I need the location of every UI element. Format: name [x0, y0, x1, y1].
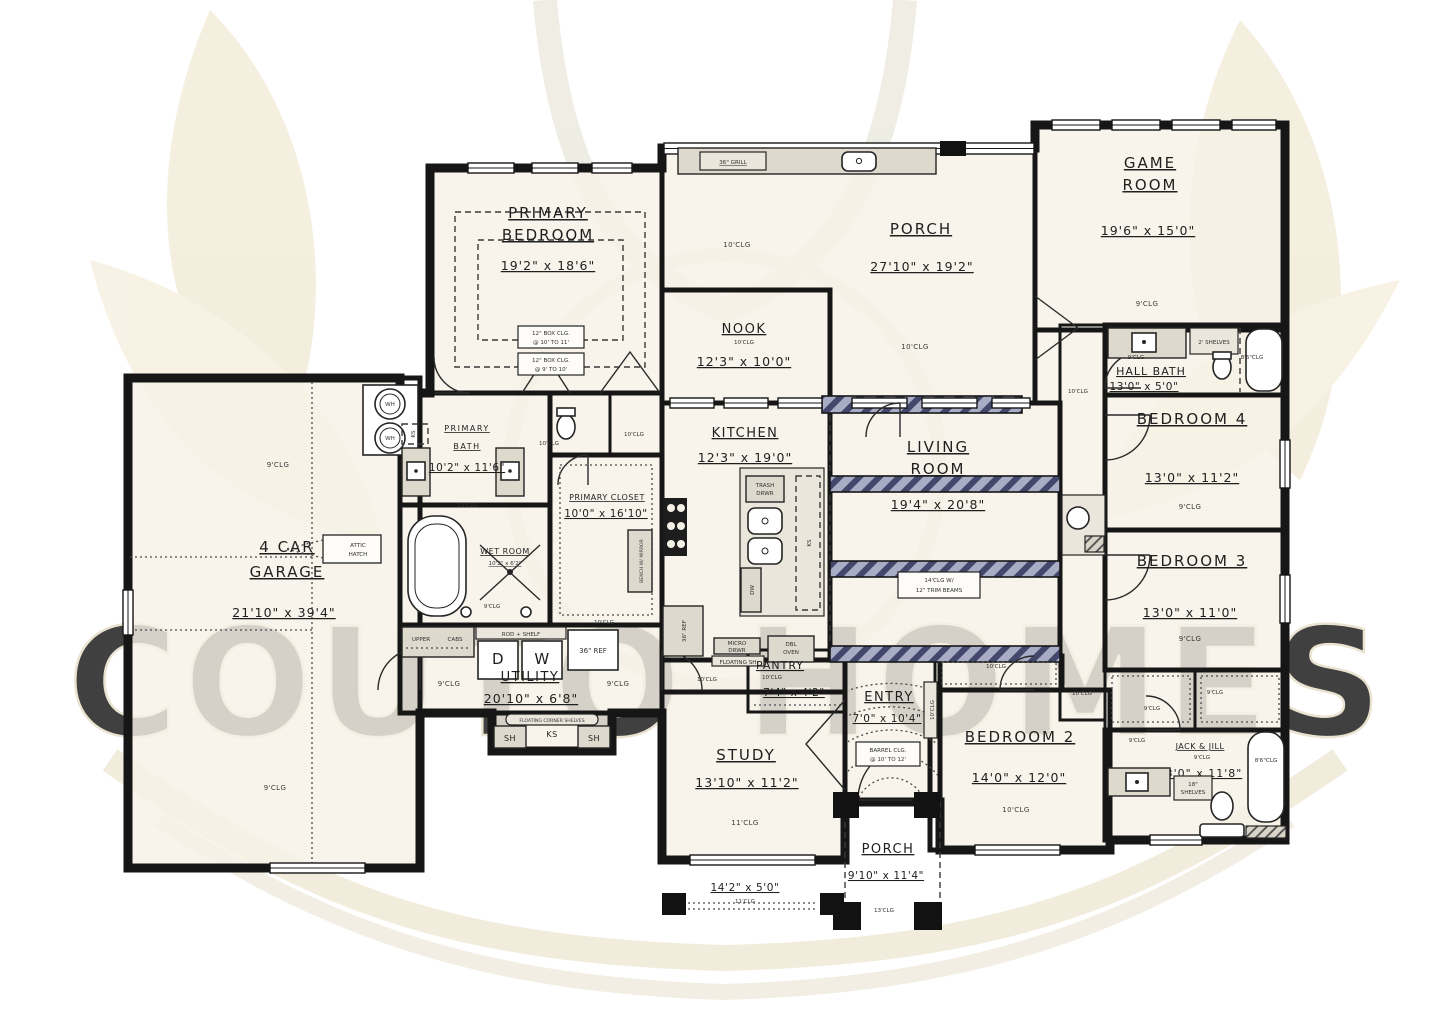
living-title-1: LIVING — [907, 438, 969, 456]
bedroom3-clg: 9'CLG — [1179, 635, 1202, 643]
wh-label-1: WH — [385, 402, 395, 408]
nook-clg: 10'CLG — [734, 340, 754, 346]
attic-hatch-label-1: ATTIC — [350, 543, 366, 549]
primary-toilet — [557, 415, 575, 439]
mud-sh-right-label: SH — [588, 734, 600, 743]
garage-title-1: 4 CAR — [259, 538, 314, 556]
beam-4 — [830, 646, 1060, 662]
game-dims: 19'6" x 15'0" — [1101, 223, 1195, 238]
entry-dims: 7'0" x 10'4" — [853, 713, 922, 725]
game-title-1: GAME — [1124, 154, 1176, 172]
wet-room-title: WET ROOM — [480, 547, 529, 556]
pantry-clg: 10'CLG — [762, 675, 782, 681]
island-sink-1 — [748, 508, 782, 534]
box-clg-2a: 12" BOX CLG. — [532, 358, 570, 364]
attic-hatch-label-2: HATCH — [349, 552, 368, 558]
trash-label-2: DRWR — [756, 491, 773, 497]
study-dims: 13'10" x 11'2" — [695, 775, 798, 790]
living-title-2: ROOM — [911, 460, 966, 478]
porch-top-dims: 27'10" x 19'2" — [870, 259, 973, 274]
jj-shelves-label-2: SHELVES — [1181, 790, 1206, 796]
box-clg-2b: @ 9' TO 10' — [535, 367, 568, 373]
hall-chase — [1085, 536, 1104, 552]
primary-bath-clg: 10'CLG — [457, 503, 477, 509]
game-clg: 9'CLG — [1136, 300, 1159, 308]
jj-tub — [1248, 732, 1284, 822]
bedroom2-closet-clg: 10'CLG — [986, 664, 1006, 670]
utility-clg-2: 9'CLG — [607, 680, 630, 688]
kitchen-title: KITCHEN — [712, 426, 779, 441]
floating-corner-shelves-label: FLOATING CORNER SHELVES — [519, 718, 584, 724]
jj-shelves-label-1: 18" — [1188, 782, 1198, 788]
upper-cabs-label-2: CABS — [447, 637, 462, 643]
utility-fridge-label: 36" REF — [579, 647, 607, 655]
nook-title: NOOK — [722, 322, 767, 337]
pedestal-tub — [408, 516, 466, 616]
bedroom4-title: BEDROOM 4 — [1137, 410, 1248, 428]
trash-label-1: TRASH — [755, 483, 775, 489]
jj-clg: 9'CLG — [1194, 755, 1210, 761]
attic-hatch-box — [323, 535, 381, 563]
box-clg-1a: 12" BOX CLG. — [532, 331, 570, 337]
jj-title: JACK & JILL — [1175, 742, 1225, 751]
dishwasher-label: DW — [750, 585, 756, 595]
bedroom2-dims: 14'0" x 12'0" — [972, 770, 1066, 785]
beam-2 — [830, 476, 1060, 492]
wet-room-dims: 10'2" x 6'2" — [489, 561, 522, 567]
porch-top-clg-2: 10'CLG — [901, 343, 928, 351]
jj-tub-clg: 8'6"CLG — [1255, 758, 1278, 764]
closet-bench-label: BENCH W/ MIRROR — [639, 538, 645, 582]
primary-closet-dims: 10'0" x 16'10" — [564, 508, 647, 520]
micro-label-2: DRWR — [728, 648, 745, 654]
shower-head-2 — [521, 607, 531, 617]
pantry-dims: 7'4" x 4'2" — [763, 687, 825, 699]
bedroom4-clg: 9'CLG — [1179, 503, 1202, 511]
beam-note-1: 14'CLG W/ — [924, 578, 953, 584]
primary-bedroom-dims: 19'2" x 18'6" — [501, 258, 595, 273]
hall-clg-3: 10'CLG — [697, 677, 717, 683]
beam-note-2: 12" TRIM BEAMS — [916, 588, 963, 594]
shower-head-1 — [461, 607, 471, 617]
nook-dims: 12'3" x 10'0" — [697, 354, 791, 369]
garage-clg-2: 9'CLG — [264, 784, 287, 792]
floating-shelf-label: FLOATING SH — [720, 660, 757, 666]
garage-dims: 21'10" x 39'4" — [232, 605, 335, 620]
hall-bath-shelves-label: 2' SHELVES — [1198, 340, 1230, 346]
hall-wh — [1067, 507, 1089, 529]
study-porch-clg: 11'CLG — [735, 899, 755, 905]
primary-linen-clg: 10'CLG — [624, 432, 644, 438]
rod-shelf-label: ROD + SHELF — [502, 632, 540, 638]
porch-bottom-clg: 13'CLG — [874, 908, 894, 914]
trash-drawer — [746, 476, 784, 502]
box-clg-1b: @ 10' TO 11' — [533, 340, 569, 346]
bath-ks-label: KS — [411, 430, 417, 438]
hall-bath-tub-clg: 8'6"CLG — [1241, 355, 1264, 361]
jj-tile — [1246, 826, 1286, 838]
primary-bedroom-title-2: BEDROOM — [502, 226, 594, 244]
jj-toilet — [1211, 792, 1233, 820]
upper-cabs-label-1: UPPER — [412, 637, 430, 643]
primary-closet-clg: 10'CLG — [594, 620, 614, 626]
micro-label-1: MICRO — [728, 641, 747, 647]
porch-top-clg-1: 10'CLG — [723, 241, 750, 249]
hall-bath-clg: 9'CLG — [1128, 355, 1144, 361]
island-ks-label: KS — [807, 539, 813, 547]
grill-label: 36" GRILL — [719, 160, 747, 166]
study-porch-dims: 14'2" x 5'0" — [711, 882, 780, 894]
hall-clg-2: 10'CLG — [1072, 691, 1092, 697]
kitchen-fridge-label: 36" REF — [682, 620, 688, 642]
wh-label-2: WH — [385, 436, 395, 442]
porch-bottom-dims: 9'10" x 11'4" — [848, 870, 924, 882]
jj-closet-clg-3: 9'CLG — [1129, 738, 1145, 744]
entry-side-clg: 10'CLG — [930, 700, 936, 720]
jj-closet-clg-1: 9'CLG — [1144, 706, 1160, 712]
dbl-oven-label-1: DBL — [785, 642, 797, 648]
island-sink-2 — [748, 538, 782, 564]
dryer-label: D — [492, 650, 504, 668]
porch-bottom-title: PORCH — [862, 842, 915, 857]
pantry-title: PANTRY — [756, 659, 804, 672]
jj-closet-clg-2: 9'CLG — [1207, 690, 1223, 696]
bedroom2-clg: 10'CLG — [1002, 806, 1029, 814]
kitchen-dims: 12'3" x 19'0" — [698, 450, 792, 465]
mud-ks-label: KS — [546, 730, 557, 739]
utility-clg-1: 9'CLG — [438, 680, 461, 688]
barrel-note-1: BARREL CLG. — [869, 748, 906, 754]
primary-bath-title-1: PRIMARY — [444, 424, 490, 433]
primary-bedroom-title-1: PRIMARY — [508, 204, 588, 222]
barrel-note-2: @ 10' TO 12' — [870, 757, 906, 763]
hall-bath-title: HALL BATH — [1116, 365, 1186, 378]
hall-clg-1: 10'CLG — [1068, 389, 1088, 395]
utility-dims: 20'10" x 6'8" — [484, 691, 578, 706]
study-clg: 11'CLG — [731, 819, 758, 827]
mud-sh-left-label: SH — [504, 734, 516, 743]
primary-wc-clg: 10'CLG — [539, 441, 559, 447]
beam-note-box — [898, 572, 980, 598]
bedroom2-title: BEDROOM 2 — [965, 728, 1076, 746]
primary-bath-title-2: BATH — [453, 442, 480, 451]
primary-closet-title: PRIMARY CLOSET — [569, 493, 645, 502]
hall-bath-dims: 13'0" x 5'0" — [1110, 381, 1179, 393]
floor-plan-drawing: COUTO HOMES — [0, 0, 1451, 1033]
bedroom4-dims: 13'0" x 11'2" — [1145, 470, 1239, 485]
utility-title: UTILITY — [501, 670, 560, 685]
garage-clg-1: 9'CLG — [267, 461, 290, 469]
wet-room-clg: 9'CLG — [484, 604, 500, 610]
outdoor-sink — [842, 152, 876, 171]
primary-bath-dims: 10'2" x 11'6" — [429, 462, 505, 474]
living-dims: 19'4" x 20'8" — [891, 497, 985, 512]
study-porch: 14'2" x 5'0" 11'CLG — [662, 882, 844, 915]
bedroom3-title: BEDROOM 3 — [1137, 552, 1248, 570]
bedroom3-dims: 13'0" x 11'0" — [1143, 605, 1237, 620]
entry-title: ENTRY — [864, 690, 914, 705]
porch-top-title: PORCH — [890, 220, 952, 238]
game-title-2: ROOM — [1123, 176, 1178, 194]
garage-title-2: GARAGE — [250, 563, 325, 581]
study-title: STUDY — [716, 746, 776, 764]
jj-shelves — [1174, 776, 1212, 800]
floor-plan-page: COUTO HOMES — [0, 0, 1451, 1033]
washer-label: W — [534, 650, 549, 668]
dbl-oven-label-2: OVEN — [783, 650, 799, 656]
